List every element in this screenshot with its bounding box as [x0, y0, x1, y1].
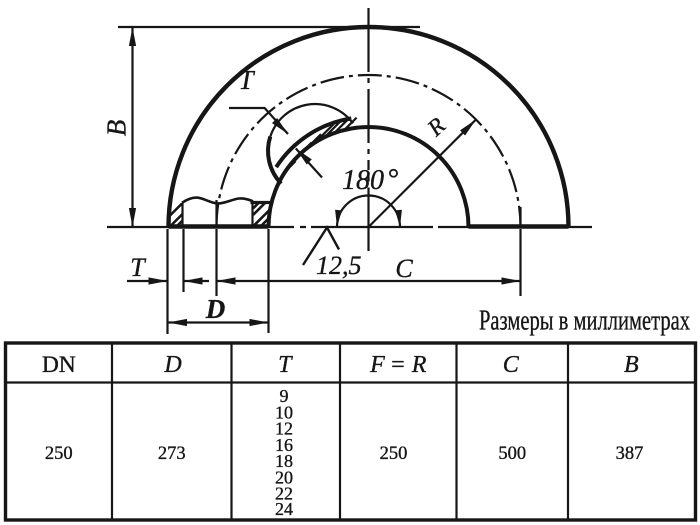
- svg-text:500: 500: [498, 444, 526, 464]
- svg-text:C: C: [395, 254, 413, 283]
- svg-text:F = R: F = R: [369, 352, 427, 378]
- svg-text:T: T: [130, 253, 146, 282]
- svg-text:273: 273: [158, 444, 186, 464]
- svg-text:C: C: [503, 352, 520, 378]
- svg-text:T: T: [238, 65, 255, 95]
- svg-text:D: D: [163, 352, 181, 378]
- svg-text:B: B: [624, 352, 639, 378]
- svg-text:180°: 180°: [342, 164, 398, 196]
- svg-text:250: 250: [45, 444, 73, 464]
- svg-text:Размеры в миллиметрах: Размеры в миллиметрах: [479, 306, 690, 337]
- svg-text:24: 24: [275, 499, 293, 519]
- svg-text:DN: DN: [42, 352, 76, 378]
- svg-text:250: 250: [380, 444, 408, 464]
- svg-text:T: T: [278, 352, 293, 378]
- svg-text:12,5: 12,5: [316, 251, 362, 280]
- svg-text:D: D: [205, 294, 226, 324]
- svg-text:387: 387: [616, 444, 644, 464]
- svg-text:B: B: [102, 120, 132, 137]
